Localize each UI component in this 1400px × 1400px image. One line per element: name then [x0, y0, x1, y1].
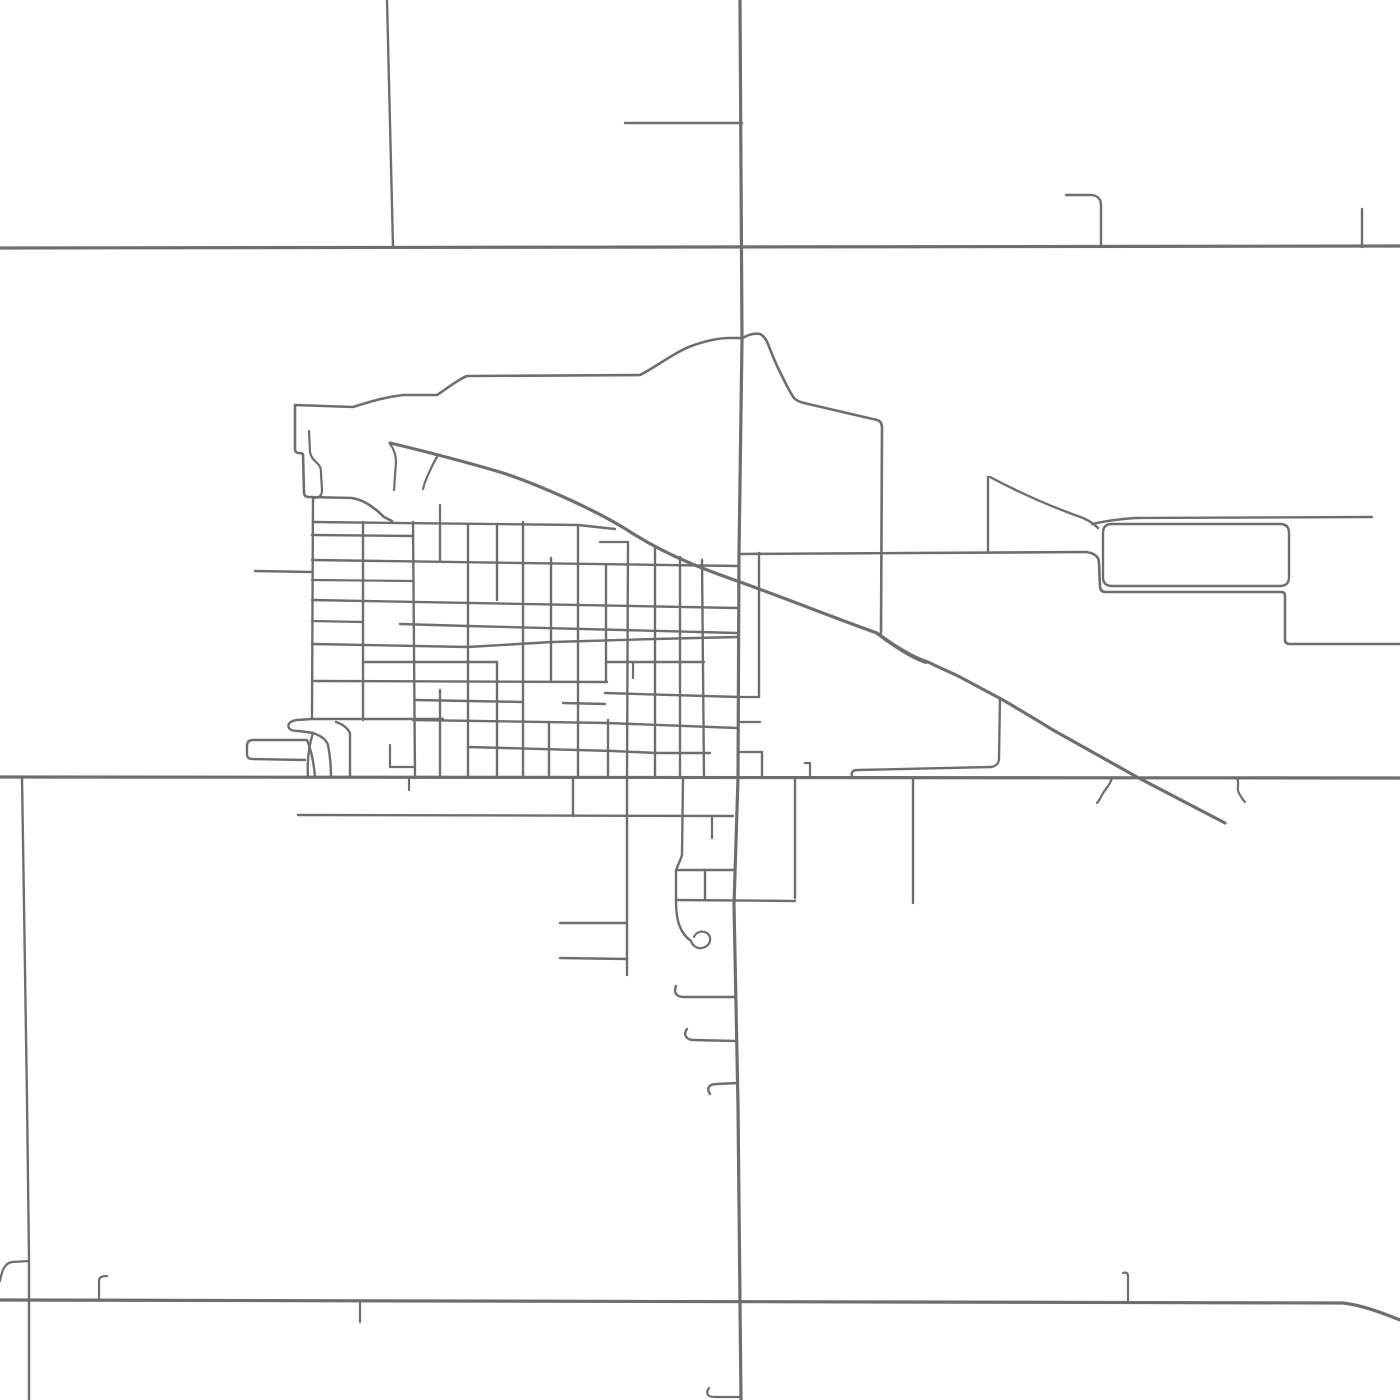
- south-hook-805: [805, 763, 810, 777]
- grid-street-v-704: [702, 560, 704, 778]
- grid-street-h-643: [312, 637, 737, 647]
- grid-street-h-703: [563, 703, 605, 704]
- diagonal-spur-b: [423, 457, 437, 489]
- bottom-stub-708: [707, 1388, 740, 1397]
- highway-north-east-west: [0, 246, 1400, 248]
- bottom-tick-1128: [1123, 1273, 1128, 1302]
- west-stub-571: [255, 571, 312, 572]
- squiggle-lane-1105: [1097, 778, 1112, 803]
- road-map-screenshot: [0, 0, 1400, 1400]
- south-hook-1085: [708, 1083, 738, 1094]
- squiggle-lane-1240: [1237, 778, 1245, 802]
- southwest-branch-curve: [0, 1261, 29, 1281]
- grid-street-h-522: [313, 522, 615, 529]
- cul-de-sac-bulb: [691, 932, 710, 949]
- funnel-top-edge: [990, 477, 1098, 528]
- town-boundary-west: [295, 405, 392, 521]
- main-road-north-south: [734, 0, 742, 1400]
- diagonal-highway: [390, 443, 1225, 823]
- east-rounded-block: [1103, 524, 1289, 586]
- grid-street-h-700: [415, 700, 523, 702]
- east-connector-road: [739, 552, 1400, 644]
- claw-funnel-right: [313, 733, 331, 777]
- claw-east-leg: [336, 722, 350, 777]
- grid-stub-h-580: [312, 580, 412, 581]
- diagonal-spur-a: [390, 444, 396, 490]
- southwest-section-line: [22, 777, 29, 1400]
- grid-street-h-682: [312, 681, 607, 682]
- south-hook-997: [675, 986, 735, 997]
- south-stub-958: [560, 958, 627, 959]
- highway-south-east-west: [0, 1300, 1400, 1320]
- grid-street-h-600: [312, 600, 737, 608]
- south-hook-1037: [685, 1029, 736, 1041]
- grid-street-h-695: [605, 693, 739, 697]
- pond-inner-lane: [309, 431, 322, 498]
- town-boundary-north: [295, 334, 882, 633]
- grid-street-h-535: [312, 535, 413, 536]
- grid-street-h-750: [468, 747, 710, 753]
- grid-stub-h-621: [312, 621, 363, 622]
- grid-street-h-628: [400, 624, 737, 633]
- grid-t-stub: [390, 745, 415, 767]
- bottom-tick-99: [99, 1276, 107, 1300]
- south-street-h-816: [298, 815, 733, 816]
- grid-street-h-562: [312, 560, 737, 566]
- grid-street-v-627: [627, 542, 628, 778]
- grid-street-v-312: [312, 499, 313, 718]
- south-street-h-900: [676, 900, 795, 901]
- road-map-canvas: [0, 0, 1400, 1400]
- grid-street-h-720: [413, 720, 737, 728]
- northeast-hook-road: [1066, 195, 1101, 247]
- west-loop-road: [247, 740, 307, 760]
- south-street-v-683: [676, 778, 691, 941]
- frontage-loop-road: [852, 698, 1000, 778]
- north-section-line: [387, 0, 393, 247]
- highway-middle-east-west: [0, 777, 1400, 778]
